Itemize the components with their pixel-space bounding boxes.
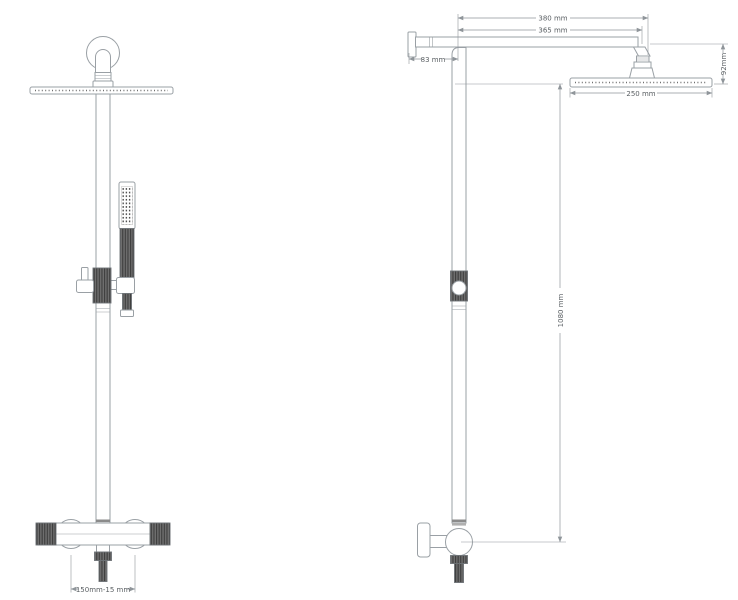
dim-label-83: 83 mm <box>421 56 446 64</box>
outlet-shoulder <box>97 545 110 552</box>
technical-drawing: 380 mm 365 mm 83 mm 92mm 250 mm 1080 <box>0 0 738 600</box>
pipe-union-band-2-side <box>452 523 466 526</box>
dimension-riser-height: 1080 mm <box>455 84 566 542</box>
dim-label-1080: 1080 mm <box>557 293 565 327</box>
outlet-nut <box>95 552 112 561</box>
outlet-nut-side <box>451 556 468 564</box>
rotated-label: 92mm <box>720 53 728 76</box>
valve-knurl-left <box>36 523 56 545</box>
dim-label-92: 92mm <box>720 53 728 76</box>
front-view <box>30 37 173 582</box>
ribbed-fitting <box>95 73 111 82</box>
dim-label-250: 250 mm <box>626 90 655 98</box>
valve-handle-side <box>418 523 431 557</box>
valve-handle-neck <box>430 536 447 548</box>
slider-block-front <box>93 268 111 303</box>
head-fitting-1 <box>637 56 650 62</box>
dim-label-150: 150mm-15 mm <box>76 586 130 594</box>
head-neck-slant <box>634 47 651 56</box>
head-fitting-2 <box>634 62 651 68</box>
hose-tip <box>121 310 134 317</box>
dim-label-380: 380 mm <box>538 15 567 23</box>
rotated-label: 1080 mm <box>557 293 565 327</box>
dimension-head-width: 250 mm <box>570 88 712 98</box>
drawing-canvas: 380 mm 365 mm 83 mm 92mm 250 mm 1080 <box>0 0 738 600</box>
pipe-union-band-1-side <box>452 520 466 523</box>
dim-label-365: 365 mm <box>538 27 567 35</box>
hand-shower-holder <box>117 278 135 294</box>
pipe-union-band-1-front <box>96 520 110 523</box>
slider-knob-side <box>452 281 466 295</box>
diverter-knob <box>77 280 94 293</box>
outlet-spout-side <box>455 564 464 583</box>
shower-arm <box>416 37 639 47</box>
diverter-stub <box>82 268 89 281</box>
hand-shower-handle <box>120 229 134 280</box>
hose-fitting <box>123 294 132 311</box>
valve-knurl-right <box>150 523 170 545</box>
hand-shower-spray-face <box>122 187 133 225</box>
outlet-spout-front <box>99 561 107 582</box>
head-base-cone <box>630 68 655 78</box>
